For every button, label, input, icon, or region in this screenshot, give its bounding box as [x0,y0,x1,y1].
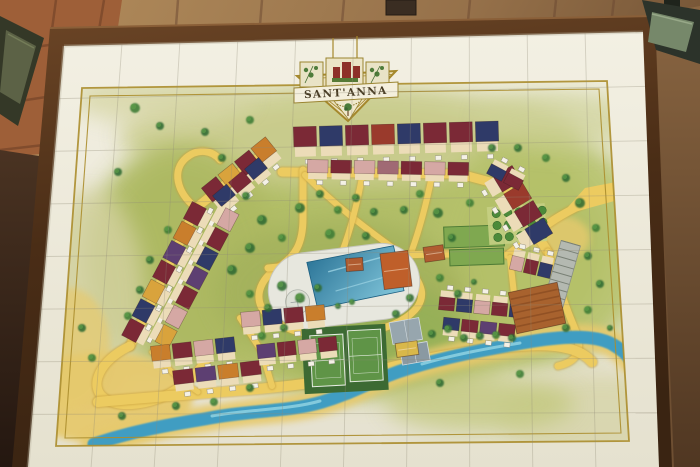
building [380,250,412,289]
house-roof [345,125,368,146]
unit-label-chip [287,363,293,368]
unit-label-chip [485,340,491,345]
unit-label-chip [482,289,488,294]
building [395,341,419,358]
terrain-wash [385,376,575,432]
house-roof [474,300,491,315]
house-roof [173,368,194,384]
unit-label-chip [387,181,393,186]
unit-label-chip [457,183,463,188]
unit-label-chip [435,156,441,161]
building [423,245,445,263]
house-roof [307,160,328,173]
house-roof [318,336,338,352]
unit-label-chip [487,154,493,159]
unit-label-chip [316,329,322,334]
logo-panel-castle [326,58,363,87]
unit-label-chip [267,366,273,371]
unit-label-chip [465,287,471,292]
unit-label-chip [434,182,440,187]
unit-label-chip [364,181,370,186]
photo-of-tiled-site-plan: SANT'ANNA [0,0,700,467]
house-roof [371,124,394,145]
unit-label-chip [207,389,214,394]
unit-label-chip [317,180,323,185]
unit-label-chip [294,331,300,336]
unit-label-chip [448,336,454,341]
house-roof [241,311,261,328]
house-roof [284,307,304,324]
house-roof [424,162,445,175]
unit-label-chip [504,342,510,347]
house-roof [331,160,352,173]
house-roof [401,161,422,174]
house-roof [354,160,375,173]
house-roof [193,339,214,356]
logo-panel-left [300,62,323,87]
wall-vent [386,0,416,15]
house-roof [448,162,469,175]
unit-label-chip [273,333,279,338]
house-roof [262,309,282,326]
unit-label-chip [461,155,467,160]
unit-label-chip [308,361,314,366]
unit-label-chip [162,369,168,374]
house-roof [215,337,236,354]
house-roof [491,302,508,317]
house-roof [195,366,216,382]
unit-label-chip [500,291,506,296]
unit-label-chip [340,181,346,186]
house-roof [438,297,455,312]
house-roof [172,342,193,359]
unit-label-chip [229,386,236,391]
house-roof [378,161,399,174]
unit-label-chip [410,182,416,187]
unit-label-chip [251,335,257,340]
house-roof [297,338,317,354]
house-roof [293,126,316,147]
unit-label-chip [184,391,191,396]
orchard-tree [505,232,514,241]
house-roof [475,121,498,142]
house-roof [240,360,261,376]
house-roof [397,123,420,144]
unit-label-chip [447,285,453,290]
house-roof [256,343,276,359]
site-plan-map: SANT'ANNA [17,33,700,467]
house-roof [319,126,342,147]
house-roof [423,123,446,144]
orchard-tree [493,221,502,230]
orchard-tree [493,233,502,242]
house-roof [277,341,297,357]
house-roof [218,363,239,379]
